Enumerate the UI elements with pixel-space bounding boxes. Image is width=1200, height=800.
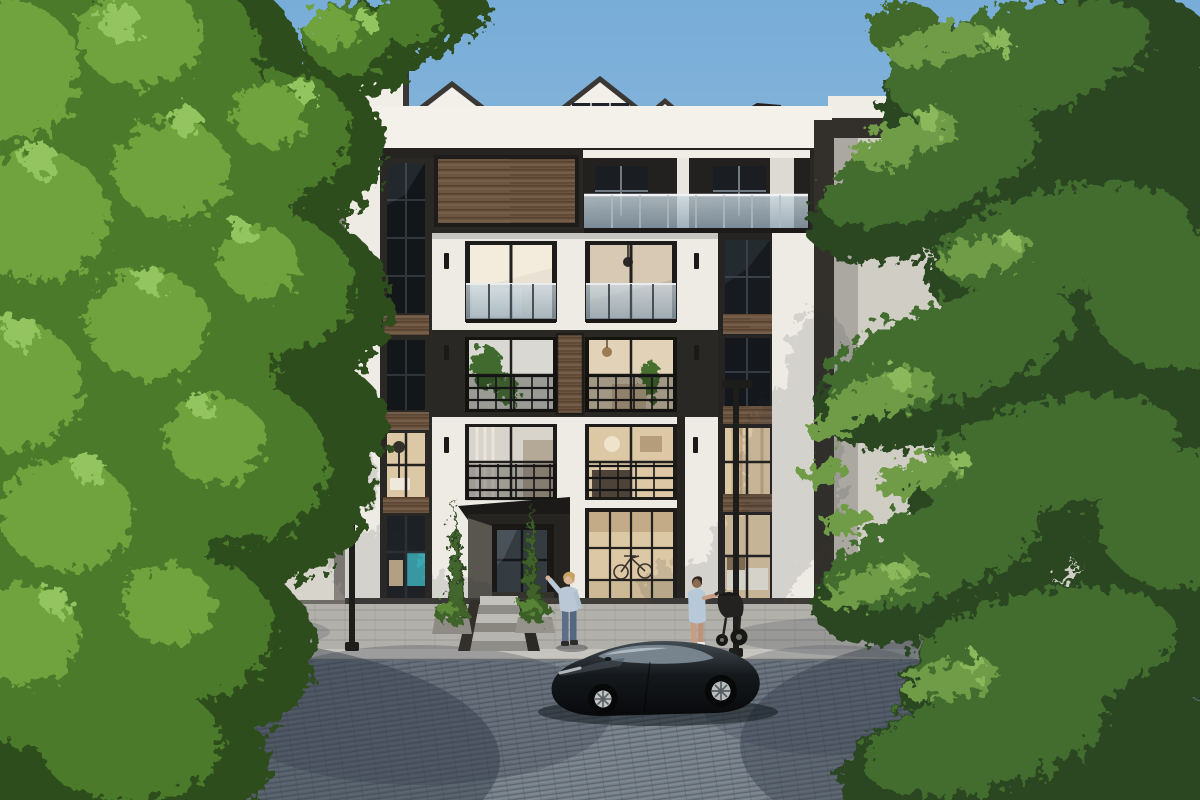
grid-balustrade xyxy=(466,464,556,500)
attic-balcony xyxy=(583,150,810,233)
left-column-lit-window xyxy=(387,433,425,497)
attic-wood-panel xyxy=(436,157,577,225)
floor3-window-left xyxy=(465,241,557,323)
floor2-window-left xyxy=(465,337,557,412)
floor2-wood-strip xyxy=(557,334,583,414)
floor2-window-right xyxy=(585,337,677,412)
floor3-window-right xyxy=(585,241,677,323)
glass-balustrade xyxy=(466,283,556,323)
parapet xyxy=(345,106,832,152)
grid-balustrade xyxy=(466,374,556,412)
attic-glass-railing xyxy=(584,194,808,233)
lamp-head xyxy=(722,380,752,388)
glass-balustrade xyxy=(586,283,676,323)
grid-balustrade xyxy=(586,374,676,412)
entrance-door xyxy=(497,530,547,592)
floor1-window-right xyxy=(585,424,677,500)
architectural-render xyxy=(0,0,1200,800)
floor1-window-left xyxy=(465,424,557,500)
